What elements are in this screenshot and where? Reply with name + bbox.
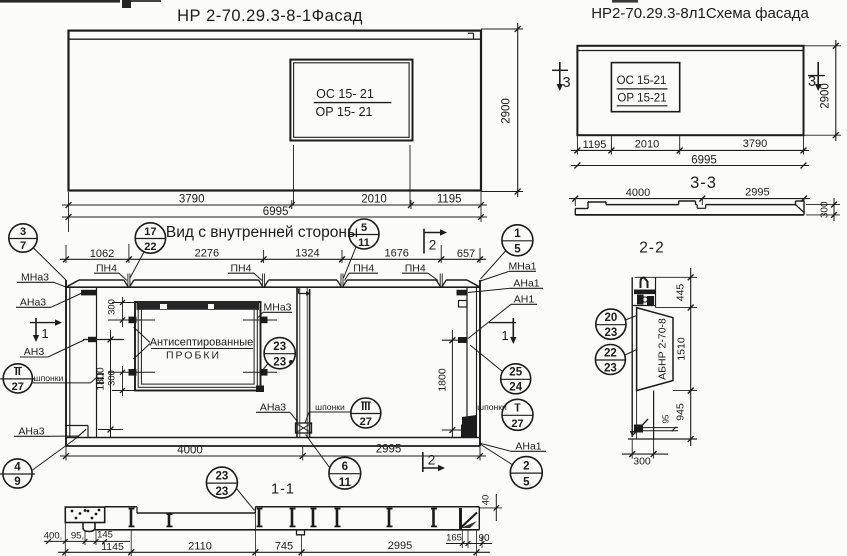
svg-text:НР 2-70.29.3-8-1Фасад: НР 2-70.29.3-8-1Фасад	[177, 7, 363, 25]
svg-text:4000: 4000	[177, 444, 203, 456]
svg-text:945: 945	[675, 403, 687, 421]
svg-text:145: 145	[97, 530, 113, 541]
svg-text:1195: 1195	[583, 139, 607, 151]
svg-text:300: 300	[820, 201, 831, 218]
svg-text:1324: 1324	[295, 247, 319, 259]
svg-text:2276: 2276	[195, 248, 219, 260]
svg-text:23: 23	[216, 486, 229, 498]
svg-text:25: 25	[509, 367, 522, 379]
svg-text:АНа1: АНа1	[515, 441, 541, 453]
svg-text:1145: 1145	[101, 541, 124, 553]
svg-text:445: 445	[675, 284, 687, 302]
svg-text:22: 22	[604, 347, 617, 359]
svg-text:ОС 15- 21: ОС 15- 21	[316, 87, 374, 101]
svg-text:6995: 6995	[263, 206, 289, 218]
svg-text:АН1: АН1	[514, 294, 535, 306]
svg-text:95,: 95,	[71, 531, 84, 542]
svg-text:20: 20	[605, 312, 618, 324]
svg-text:2110: 2110	[188, 540, 212, 552]
svg-text:НР2-70.29.3-8л1Схема фасада: НР2-70.29.3-8л1Схема фасада	[591, 5, 809, 22]
svg-text:Вид с внутренней стороны: Вид с внутренней стороны	[166, 224, 358, 241]
svg-text:27: 27	[511, 418, 523, 430]
svg-text:3-3: 3-3	[690, 174, 717, 192]
svg-text:ОС 15-21: ОС 15-21	[617, 75, 667, 87]
svg-text:МНа3: МНа3	[263, 302, 291, 314]
svg-text:745: 745	[275, 540, 293, 552]
svg-text:24: 24	[509, 382, 522, 394]
svg-text:1: 1	[41, 326, 48, 341]
svg-text:АНа1: АНа1	[513, 278, 539, 290]
svg-text:1510: 1510	[676, 337, 688, 361]
svg-text:6995: 6995	[691, 154, 717, 166]
svg-text:2-2: 2-2	[639, 240, 664, 257]
svg-text:2010: 2010	[361, 194, 387, 206]
svg-text:АБНР 2-70-8: АБНР 2-70-8	[657, 318, 669, 380]
svg-text:6: 6	[342, 461, 348, 473]
svg-text:27: 27	[12, 381, 24, 393]
svg-text:МНа1: МНа1	[508, 261, 536, 273]
svg-text:2995: 2995	[745, 187, 769, 199]
svg-text:90: 90	[478, 533, 490, 544]
svg-text:1062: 1062	[90, 248, 114, 260]
svg-text:23: 23	[273, 357, 286, 369]
svg-text:3790: 3790	[743, 138, 767, 150]
svg-text:4: 4	[14, 461, 21, 473]
svg-text:1-1: 1-1	[271, 482, 295, 498]
svg-text:АНа3: АНа3	[18, 426, 44, 438]
svg-text:40: 40	[481, 495, 492, 506]
svg-text:23: 23	[273, 341, 286, 353]
svg-text:9: 9	[14, 476, 20, 488]
svg-text:шпонки: шпонки	[315, 402, 345, 412]
svg-text:2: 2	[428, 453, 436, 468]
svg-text:ПРОБКИ: ПРОБКИ	[166, 350, 221, 362]
svg-text:2995: 2995	[388, 540, 412, 552]
svg-text:3790: 3790	[179, 194, 205, 206]
svg-text:3: 3	[808, 74, 816, 90]
svg-text:2900: 2900	[501, 98, 513, 124]
svg-text:МНа3: МНа3	[21, 272, 49, 284]
svg-text:4000: 4000	[626, 187, 650, 199]
svg-text:5: 5	[361, 222, 367, 234]
svg-text:11: 11	[358, 237, 370, 249]
svg-text:АН3: АН3	[24, 346, 45, 358]
svg-text:3: 3	[20, 226, 26, 238]
svg-text:3: 3	[562, 75, 570, 91]
svg-text:1195: 1195	[437, 194, 462, 206]
svg-text:2995: 2995	[376, 443, 402, 455]
svg-text:300: 300	[633, 456, 651, 468]
svg-text:1: 1	[501, 328, 508, 343]
svg-text:АНа3: АНа3	[20, 297, 46, 309]
svg-text:2: 2	[429, 238, 437, 253]
svg-text:27: 27	[360, 416, 372, 428]
svg-text:1800: 1800	[437, 368, 449, 392]
svg-text:300: 300	[107, 370, 118, 386]
svg-text:ОР 15- 21: ОР 15- 21	[316, 105, 373, 119]
svg-text:АНа3: АНа3	[260, 402, 286, 414]
svg-text:23: 23	[604, 362, 617, 374]
svg-text:23: 23	[605, 327, 618, 339]
svg-text:165: 165	[446, 533, 462, 544]
svg-text:22: 22	[144, 241, 156, 253]
svg-text:17: 17	[144, 226, 156, 238]
svg-text:300: 300	[107, 299, 118, 315]
svg-text:23: 23	[216, 470, 229, 482]
svg-text:5: 5	[523, 476, 530, 488]
svg-text:657: 657	[457, 248, 475, 260]
svg-text:2900: 2900	[820, 83, 832, 109]
svg-text:11: 11	[339, 477, 352, 489]
svg-text:ОР 15-21: ОР 15-21	[617, 93, 666, 105]
svg-text:1: 1	[514, 228, 521, 240]
svg-text:7: 7	[20, 240, 26, 252]
svg-text:III: III	[361, 401, 370, 413]
svg-text:2010: 2010	[635, 139, 659, 151]
svg-text:Антисептированные: Антисептированные	[150, 337, 254, 349]
svg-text:95: 95	[662, 414, 671, 423]
svg-text:шпонки: шпонки	[34, 373, 64, 383]
svg-text:1676: 1676	[384, 247, 408, 259]
svg-text:1800: 1800	[95, 367, 107, 391]
svg-text:2: 2	[523, 460, 529, 472]
svg-text:5: 5	[514, 244, 521, 256]
svg-text:400,: 400,	[44, 531, 63, 542]
